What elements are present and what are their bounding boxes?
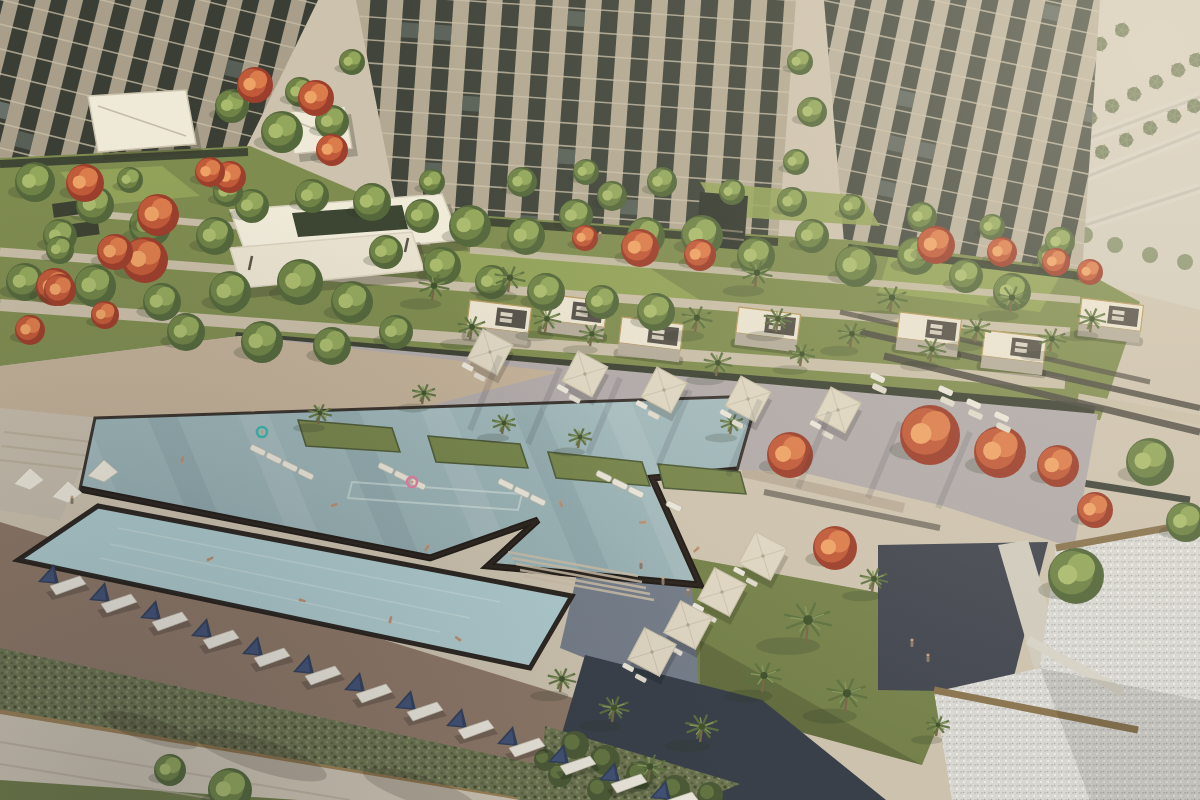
architectural-render-image [0, 0, 1200, 800]
sun-glow-overlay [0, 0, 1200, 800]
layer-lighting [0, 0, 1200, 800]
pool-courtyard-aerial-render [0, 0, 1200, 800]
